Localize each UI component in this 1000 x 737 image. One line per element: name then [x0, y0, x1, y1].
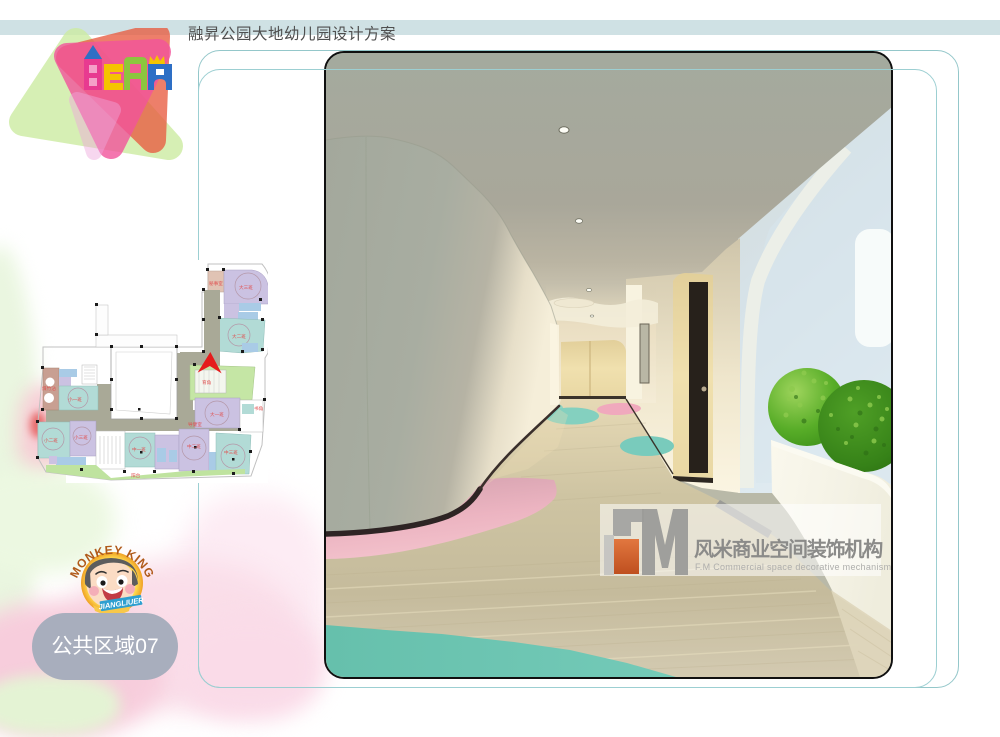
svg-text:煤竹沾: 煤竹沾 [42, 385, 56, 392]
svg-text:书角: 书角 [254, 405, 264, 412]
svg-text:秘事室: 秘事室 [209, 280, 223, 287]
svg-text:阳台: 阳台 [131, 472, 141, 479]
svg-text:小一班: 小一班 [68, 396, 82, 403]
svg-text:大三班: 大三班 [239, 284, 253, 291]
svg-text:小三班: 小三班 [74, 434, 88, 441]
svg-text:导健室: 导健室 [188, 421, 202, 428]
svg-text:中二班: 中二班 [187, 443, 201, 450]
svg-text:中一班: 中一班 [132, 446, 146, 453]
svg-text:大二班: 大二班 [232, 333, 246, 340]
svg-text:中三班: 中三班 [224, 449, 238, 456]
svg-text:育角: 育角 [202, 379, 212, 386]
svg-text:小二班: 小二班 [44, 437, 58, 444]
svg-text:大一班: 大一班 [210, 411, 224, 418]
